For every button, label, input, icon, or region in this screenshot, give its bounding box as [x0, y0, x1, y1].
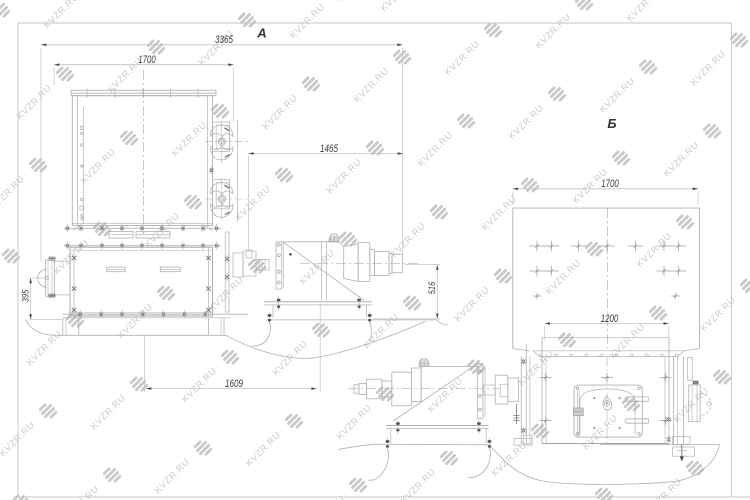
svg-text:1700: 1700: [138, 54, 156, 66]
svg-text:Б: Б: [607, 116, 616, 131]
svg-text:516: 516: [427, 281, 438, 294]
svg-text:395: 395: [20, 289, 31, 302]
svg-text:1700: 1700: [601, 178, 619, 190]
svg-text:3365: 3365: [215, 34, 233, 46]
svg-text:1200: 1200: [601, 313, 619, 325]
svg-text:А: А: [256, 26, 266, 41]
svg-text:1609: 1609: [225, 378, 243, 390]
svg-text:1465: 1465: [320, 143, 338, 155]
